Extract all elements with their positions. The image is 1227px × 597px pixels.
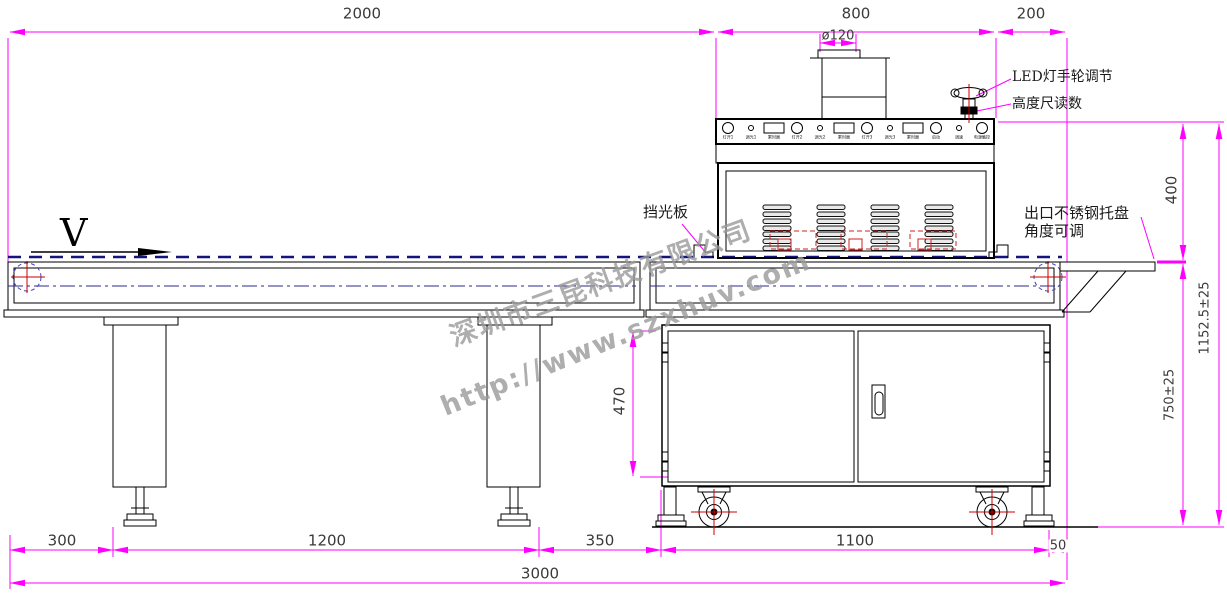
annotation-led-adjust: LED灯手轮调节 xyxy=(1012,70,1113,84)
dim-leg-offset: 300 xyxy=(48,534,77,549)
annotation-height-gauge: 高度尺读数 xyxy=(1012,97,1082,111)
annotation-light-shield: 挡光板 xyxy=(643,205,688,220)
dim-belt-height: 750±25 xyxy=(1164,369,1177,421)
dim-machine-length: 800 xyxy=(842,7,871,22)
uv-curing-machine-drawing: 2000 800 200 ø120 400 1152.5±25 750±25 4… xyxy=(0,0,1227,597)
casters xyxy=(691,487,1015,535)
dim-infeed-length: 2000 xyxy=(343,7,381,22)
drawing-linework xyxy=(0,0,1227,597)
panel-label-power: 电源触控 xyxy=(969,136,996,140)
control-panel-glyphs xyxy=(723,123,988,134)
cabinet xyxy=(662,325,1050,486)
belt-direction-label: V xyxy=(60,214,87,252)
dim-cabinet-width: 1100 xyxy=(836,534,874,549)
dim-cabinet-to-end: 50 xyxy=(1049,540,1068,553)
dim-outfeed-length: 200 xyxy=(1017,7,1046,22)
dim-total-length: 3000 xyxy=(521,567,559,582)
dim-leg-spacing: 1200 xyxy=(308,534,346,549)
annotation-outlet-tray-2: 角度可调 xyxy=(1024,224,1084,239)
dim-cabinet-clearance: 470 xyxy=(613,387,628,416)
dim-overall-height: 1152.5±25 xyxy=(1199,282,1212,355)
dim-leg-to-cabinet: 350 xyxy=(586,534,615,549)
panel-label-dim2: 调光2 xyxy=(807,136,834,140)
annotation-outlet-tray-1: 出口不锈钢托盘 xyxy=(1024,206,1129,221)
dim-machine-height: 400 xyxy=(1165,176,1180,205)
conveyor-legs xyxy=(104,317,552,526)
belt-centerlines xyxy=(8,257,1062,286)
direction-arrow xyxy=(31,248,172,256)
dim-duct-diameter: ø120 xyxy=(822,30,855,43)
outlet-tray xyxy=(1060,262,1155,312)
handwheel-height-gauge xyxy=(951,84,987,123)
